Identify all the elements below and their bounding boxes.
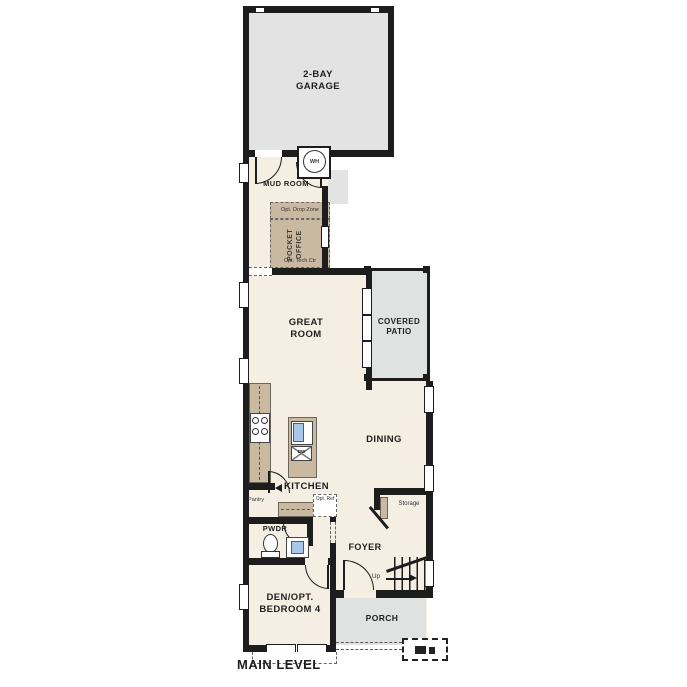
patio-post [423,374,430,381]
floor-plan: WH DW 2-BAY GARAGE MUD ROOM Opt. Drop Zo… [0,0,687,687]
opt-drop-zone-label: Opt. Drop Zone [270,207,330,213]
island-sink-basin [293,423,304,442]
wall [243,558,305,565]
slider-mullion [362,314,372,316]
burner-icon [252,417,259,424]
pwdr-sink-basin [291,541,304,554]
dishwasher-label: DW [291,449,312,454]
pwdr-label: PWDR [255,524,295,534]
wall [322,186,328,226]
wall [327,645,336,652]
wall [243,157,249,652]
slider-mullion [362,340,372,342]
patio-post [364,374,371,381]
wall [243,6,249,158]
kitchen-label: KITCHEN [284,481,348,493]
door-leaf [343,560,345,590]
wall [328,558,336,565]
great-room-label: GREAT ROOM [276,317,336,342]
wall [272,268,330,275]
burner-icon [261,417,268,424]
water-heater-icon: WH [303,150,326,173]
den-label: DEN/OPT. BEDROOM 4 [251,592,329,617]
cased-opening [249,267,272,276]
pantry-label: Pantry [242,497,270,503]
pocket-office-window [321,226,329,248]
patio-edge [366,378,430,381]
foyer-label: FOYER [341,542,389,554]
storage-label: Storage [392,501,426,508]
toilet-tank [261,551,280,558]
window [239,282,249,308]
opt-ref-label: Opt. Ref [313,497,337,503]
porch-open-edge [336,642,402,650]
door-leaf [268,471,270,493]
burner-icon [252,428,259,435]
wall [374,495,380,510]
kitchen-arrow-icon [275,484,282,492]
wall [243,645,267,652]
patio-post [423,266,430,273]
window [239,358,249,384]
garage-label: 2-BAY GARAGE [283,69,353,94]
patio-edge [366,268,430,271]
paver-stone [429,647,435,654]
patio-post [364,266,371,273]
window [424,465,434,492]
paver-stone [415,646,426,654]
opt-tech-ctr-label: Opt. Tech Ctr [270,258,330,264]
cased-opening [330,522,336,543]
window [239,584,249,610]
wall [332,590,344,598]
mud-room-label: MUD ROOM [262,179,310,189]
window [239,163,249,183]
patio-edge [427,268,430,381]
up-arrow-icon [409,574,417,582]
up-label: Up [368,573,384,580]
up-arrow-line [386,578,410,580]
exterior-pad [328,170,348,204]
door-leaf [255,157,257,184]
porch-label: PORCH [351,613,413,624]
window [424,386,434,413]
wall [330,565,336,652]
garage-door-notch [371,8,379,12]
burner-icon [261,428,268,435]
storage-door-slab [380,497,388,519]
stairs [388,557,427,593]
wall [388,6,394,157]
plan-title: MAIN LEVEL [237,657,357,674]
dining-label: DINING [354,434,414,446]
covered-patio-label: COVERED PATIO [371,317,427,338]
door-leaf [327,565,329,589]
garage-door-notch [256,8,264,12]
wall [243,150,255,157]
